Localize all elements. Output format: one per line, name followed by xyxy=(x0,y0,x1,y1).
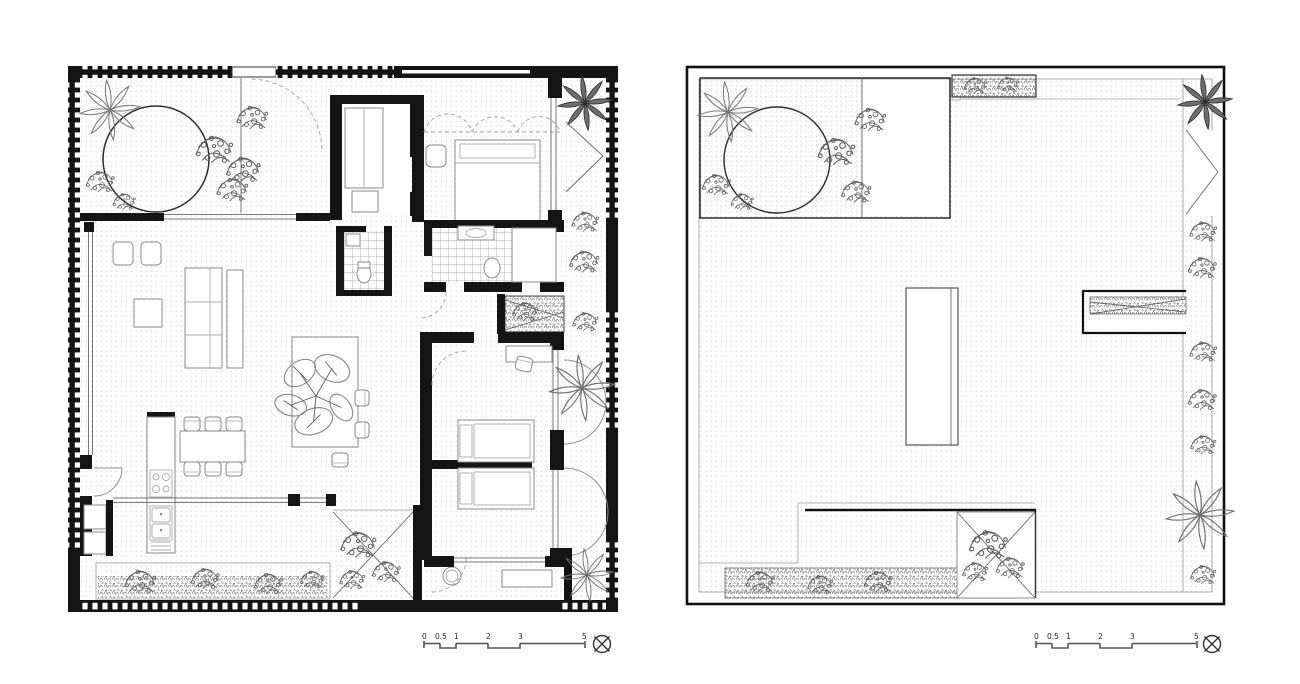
dining-area xyxy=(180,417,245,476)
scale-mark: 2 xyxy=(1098,632,1103,641)
north-arrow-icon xyxy=(594,636,611,653)
scale-mark: 5 xyxy=(1194,632,1199,641)
toilet xyxy=(484,258,500,278)
laundry-room xyxy=(330,95,420,220)
dining-table xyxy=(180,431,245,462)
storage-unit xyxy=(84,532,106,554)
kitchen xyxy=(147,412,175,553)
armchair xyxy=(113,242,133,265)
chair xyxy=(184,417,200,431)
toilet-room xyxy=(336,226,392,296)
chair xyxy=(332,453,348,467)
scale-bar-right: 0 0.5 1 2 3 5 xyxy=(1034,632,1221,653)
scale-mark: 0 xyxy=(1034,632,1039,641)
bed-single xyxy=(458,420,534,462)
desk-chair xyxy=(515,355,534,372)
scale-mark: 5 xyxy=(582,632,587,641)
chair xyxy=(184,462,200,476)
scale-mark: 3 xyxy=(1130,632,1135,641)
plans-svg: 0 0.5 1 2 3 5 0 0.5 1 2 3 5 xyxy=(0,0,1300,684)
bedside-chair xyxy=(426,145,446,167)
lightwell-planter xyxy=(497,294,564,334)
scale-bar-left: 0 0.5 1 2 3 5 xyxy=(422,632,611,653)
floor-plan xyxy=(68,66,618,612)
entry-gate xyxy=(232,67,276,77)
shower xyxy=(512,228,556,282)
chair xyxy=(355,390,369,406)
desk xyxy=(502,570,552,587)
bed-single xyxy=(458,468,534,509)
roof-plan xyxy=(687,67,1234,604)
sofa xyxy=(185,268,243,368)
basin xyxy=(346,234,360,246)
scale-mark: 1 xyxy=(1066,632,1071,641)
chair xyxy=(205,462,221,476)
chair xyxy=(355,422,369,438)
scale-mark: 2 xyxy=(486,632,491,641)
patio-tree xyxy=(957,512,1035,598)
counter xyxy=(147,417,175,553)
roof-skylight xyxy=(906,288,958,445)
bed-double xyxy=(455,140,540,222)
scale-mark: 3 xyxy=(518,632,523,641)
storage-unit xyxy=(352,191,378,212)
scale-mark: 1 xyxy=(454,632,459,641)
chair xyxy=(205,417,221,431)
scale-mark: 0.5 xyxy=(1047,632,1059,641)
chair xyxy=(226,417,242,431)
drawing-sheet: 0 0.5 1 2 3 5 0 0.5 1 2 3 5 xyxy=(0,0,1300,684)
scale-mark: 0.5 xyxy=(435,632,447,641)
roof-lightwell-notch xyxy=(1083,291,1186,333)
storage-unit xyxy=(84,505,106,529)
north-arrow-icon xyxy=(1204,636,1221,653)
roof-courtyard-opening xyxy=(698,78,950,218)
armchair xyxy=(141,242,161,265)
side-table xyxy=(134,299,162,327)
scale-mark: 0 xyxy=(422,632,427,641)
chair xyxy=(226,462,242,476)
